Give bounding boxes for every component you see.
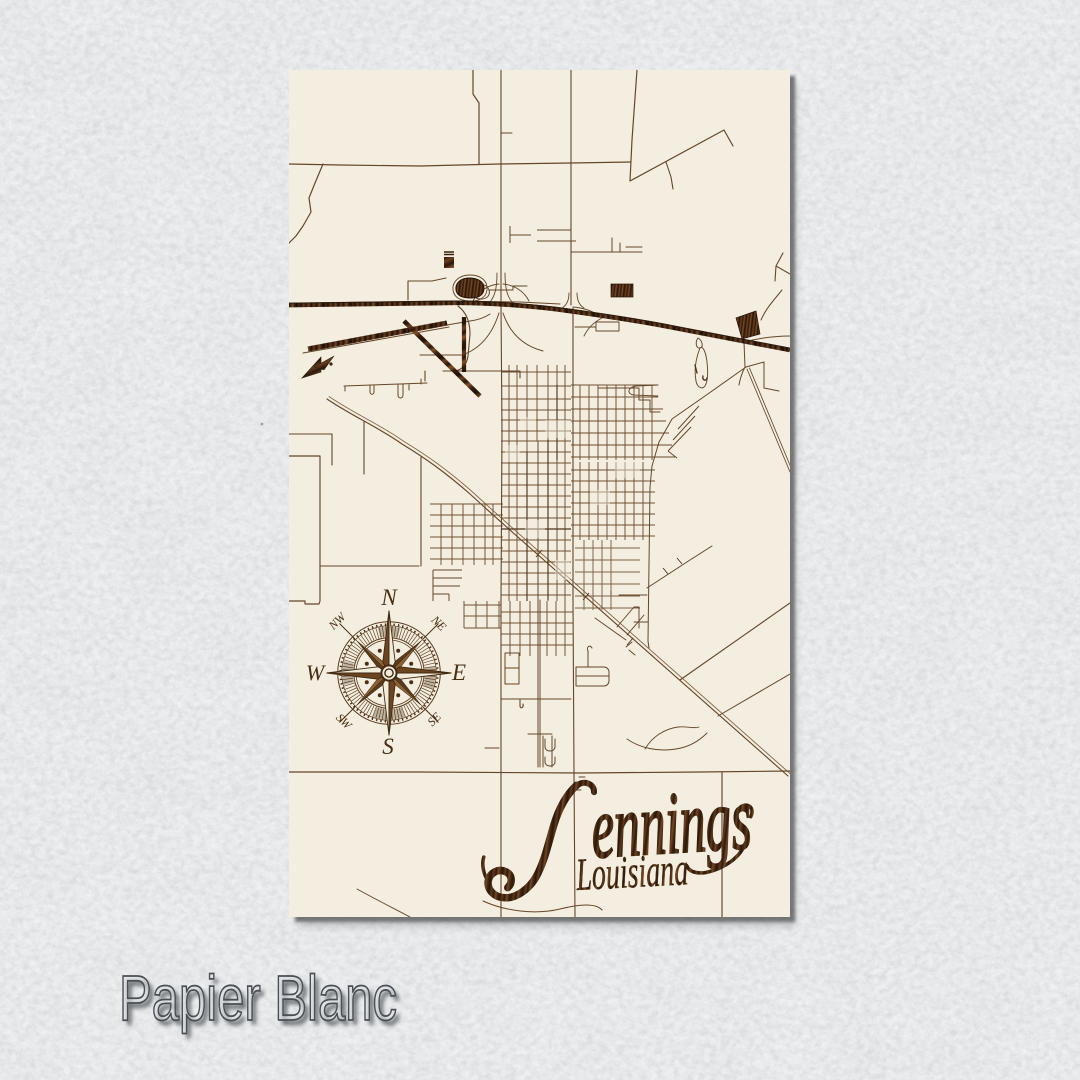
svg-text:S: S xyxy=(382,734,394,759)
svg-text:W: W xyxy=(306,660,326,685)
svg-text:Louisiana: Louisiana xyxy=(574,843,689,900)
svg-text:Papier Blanc: Papier Blanc xyxy=(119,962,397,1034)
svg-text:E: E xyxy=(451,660,466,685)
svg-text:N: N xyxy=(380,585,398,610)
